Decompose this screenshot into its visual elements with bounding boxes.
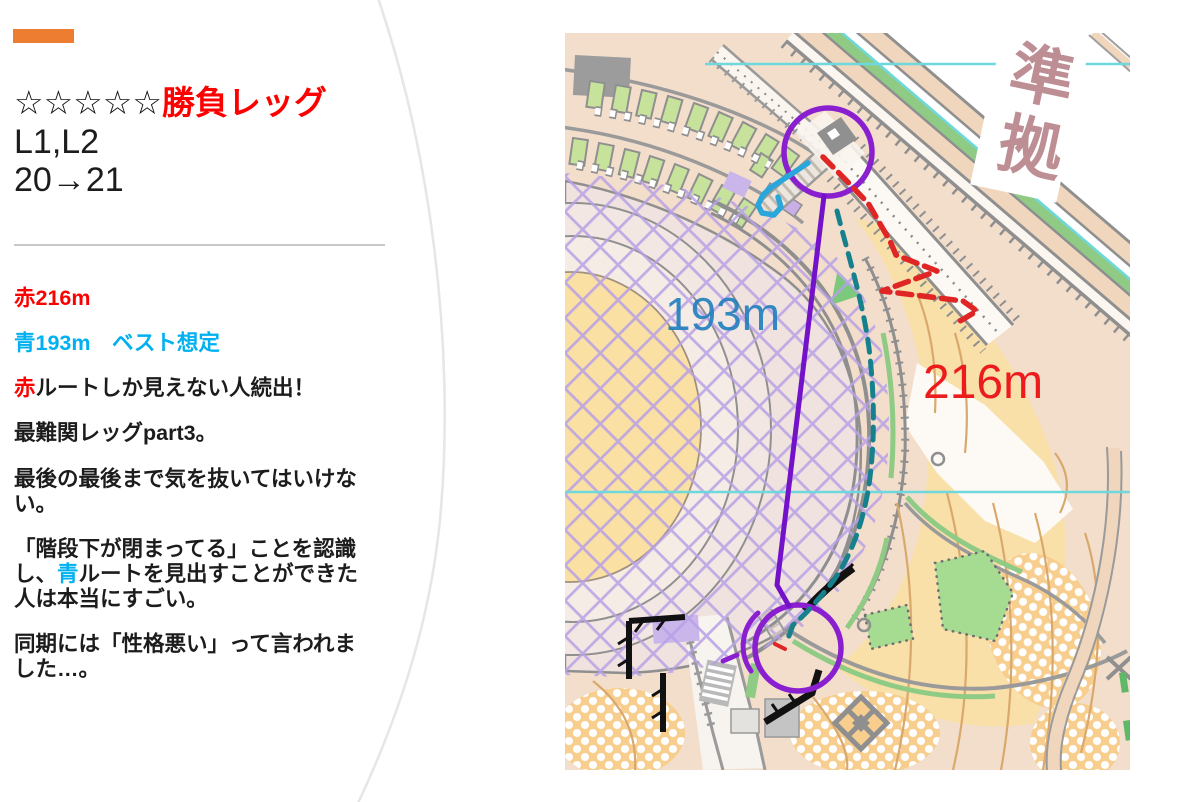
title-emphasis: 勝負レッグ [162,84,327,121]
title-leg-courses: L1,L2 [14,123,414,161]
orienteering-map: 193m 216m 準 拠 [565,33,1130,770]
accent-bar [13,29,74,43]
note-blue-distance: 青193m ベスト想定 [14,331,370,356]
note-p2: 最難関レッグpart3。 [14,421,370,446]
note-p4: 「階段下が閉まってる」ことを認識し、青ルートを見出すことができた人は本当にすごい… [14,537,370,612]
slide: ☆☆☆☆☆勝負レッグ L1,L2 20→21 赤216m 青193m ベスト想定… [0,0,1200,802]
notes-block: 赤216m 青193m ベスト想定 赤ルートしか見えない人続出！ 最難関レッグp… [14,286,370,703]
title-stars: ☆☆☆☆☆ [14,84,162,121]
note-p1: 赤ルートしか見えない人続出！ [14,376,370,401]
red-distance-label: 216m [923,356,1043,409]
note-p5: 同期には「性格悪い」って言われました…。 [14,632,370,682]
title-leg-controls: 20→21 [14,161,414,199]
note-red-distance: 赤216m [14,286,370,311]
divider-line [14,244,385,246]
blue-distance-label: 193m [665,288,780,340]
title-block: ☆☆☆☆☆勝負レッグ L1,L2 20→21 [14,82,414,199]
page-title: ☆☆☆☆☆勝負レッグ [14,82,414,123]
note-p3: 最後の最後まで気を抜いてはいけない。 [14,467,370,517]
